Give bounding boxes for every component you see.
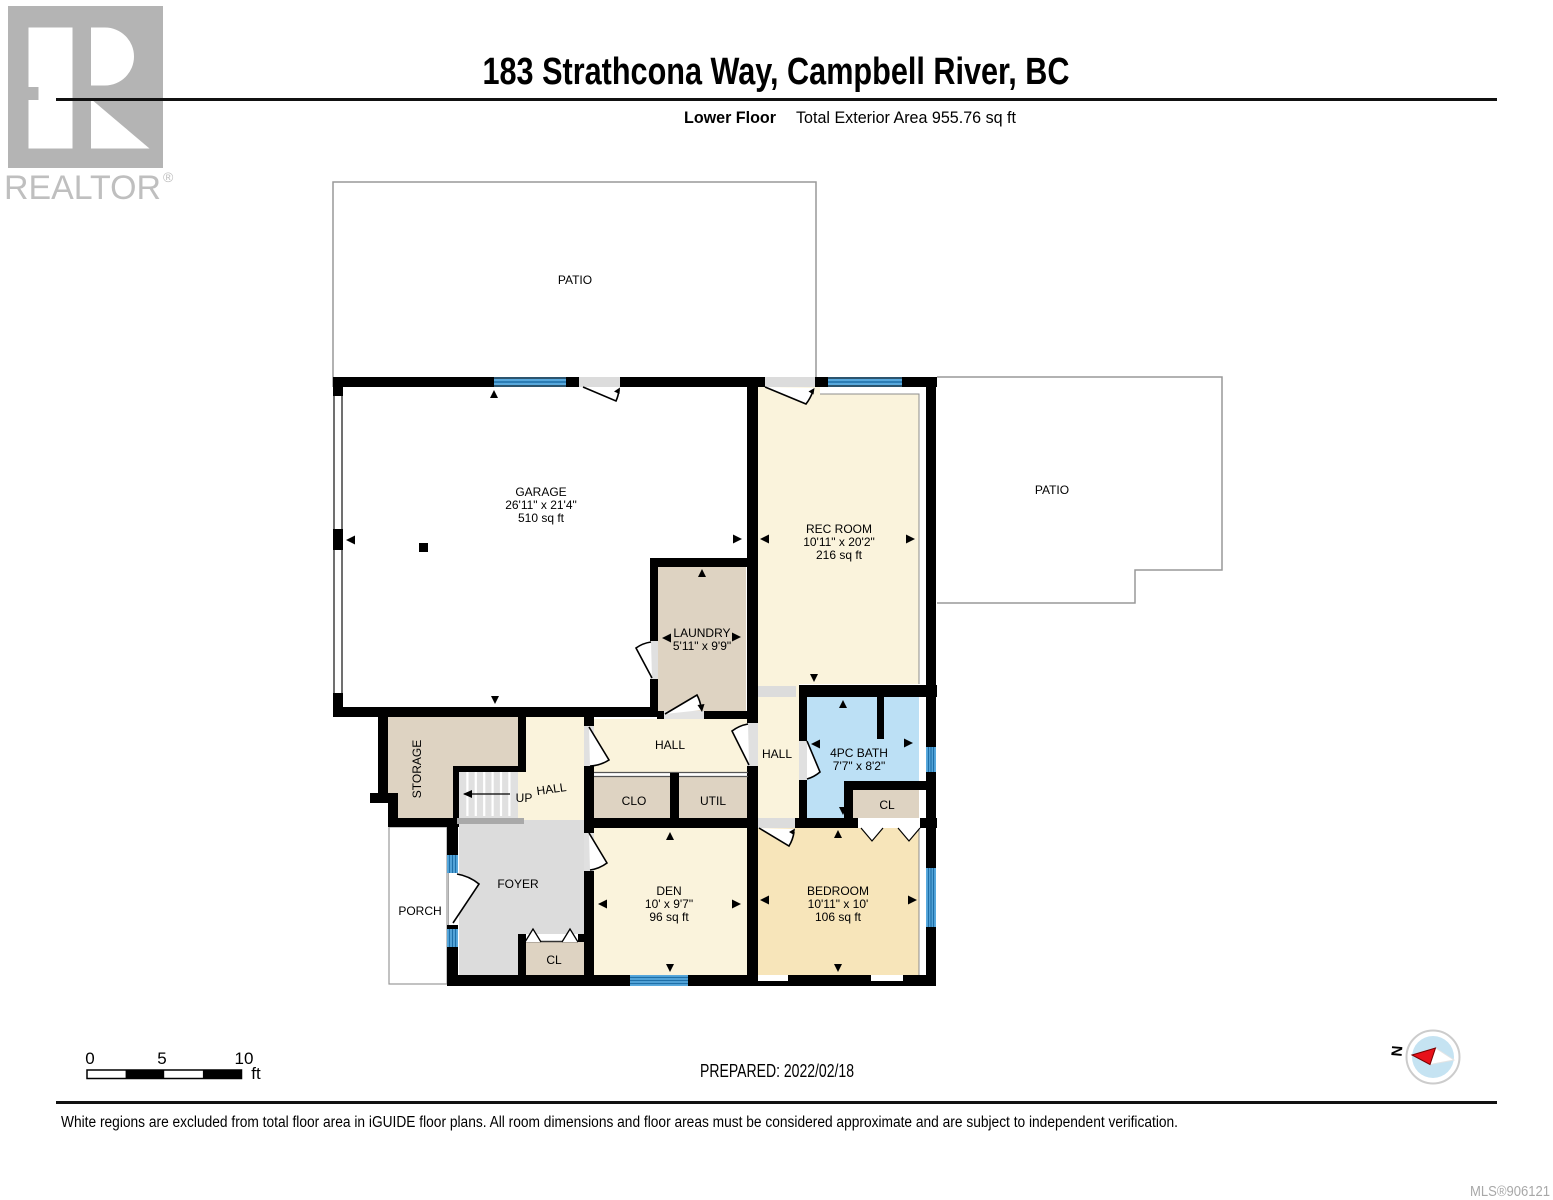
- svg-text:UP: UP: [516, 791, 533, 805]
- svg-text:MLS®906121: MLS®906121: [1470, 1184, 1550, 1200]
- svg-text:0: 0: [85, 1049, 94, 1068]
- svg-text:DEN: DEN: [656, 884, 681, 898]
- svg-text:PATIO: PATIO: [558, 273, 592, 287]
- svg-text:ft: ft: [251, 1064, 261, 1083]
- svg-text:®: ®: [163, 169, 174, 185]
- svg-text:HALL: HALL: [762, 747, 792, 761]
- svg-text:GARAGE: GARAGE: [515, 485, 566, 499]
- svg-text:5: 5: [157, 1049, 166, 1068]
- svg-text:PATIO: PATIO: [1035, 483, 1069, 497]
- svg-text:REALTOR: REALTOR: [4, 169, 161, 207]
- svg-text:96 sq ft: 96 sq ft: [649, 910, 689, 924]
- svg-text:CLO: CLO: [622, 794, 647, 808]
- svg-text:CL: CL: [879, 798, 895, 812]
- svg-text:STORAGE: STORAGE: [410, 740, 424, 798]
- svg-text:510 sq ft: 510 sq ft: [518, 511, 565, 525]
- svg-text:N: N: [1389, 1045, 1407, 1057]
- svg-text:26'11" x 21'4": 26'11" x 21'4": [505, 498, 577, 512]
- svg-text:216 sq ft: 216 sq ft: [816, 548, 863, 562]
- svg-text:CL: CL: [546, 953, 562, 967]
- svg-text:REC ROOM: REC ROOM: [806, 522, 872, 536]
- svg-text:Lower Floor: Lower Floor: [684, 108, 776, 127]
- svg-text:106 sq ft: 106 sq ft: [815, 910, 862, 924]
- svg-text:FOYER: FOYER: [497, 877, 539, 891]
- svg-text:7'7" x 8'2": 7'7" x 8'2": [833, 759, 885, 773]
- svg-text:10' x 9'7": 10' x 9'7": [645, 897, 693, 911]
- svg-text:4PC BATH: 4PC BATH: [830, 746, 888, 760]
- svg-text:PORCH: PORCH: [398, 904, 441, 918]
- svg-text:Total Exterior Area 955.76 sq: Total Exterior Area 955.76 sq ft: [796, 108, 1016, 127]
- svg-text:BEDROOM: BEDROOM: [807, 884, 869, 898]
- svg-text:183 Strathcona Way, Campbell R: 183 Strathcona Way, Campbell River, BC: [483, 51, 1070, 93]
- svg-text:5'11" x 9'9": 5'11" x 9'9": [673, 639, 731, 653]
- svg-text:UTIL: UTIL: [700, 794, 726, 808]
- svg-text:HALL: HALL: [655, 738, 685, 752]
- svg-text:10'11" x 20'2": 10'11" x 20'2": [803, 535, 875, 549]
- svg-text:LAUNDRY: LAUNDRY: [673, 626, 730, 640]
- svg-text:10'11" x 10': 10'11" x 10': [808, 897, 869, 911]
- svg-text:PREPARED: 2022/02/18: PREPARED: 2022/02/18: [700, 1061, 854, 1081]
- svg-text:White regions are excluded fro: White regions are excluded from total fl…: [61, 1114, 1178, 1131]
